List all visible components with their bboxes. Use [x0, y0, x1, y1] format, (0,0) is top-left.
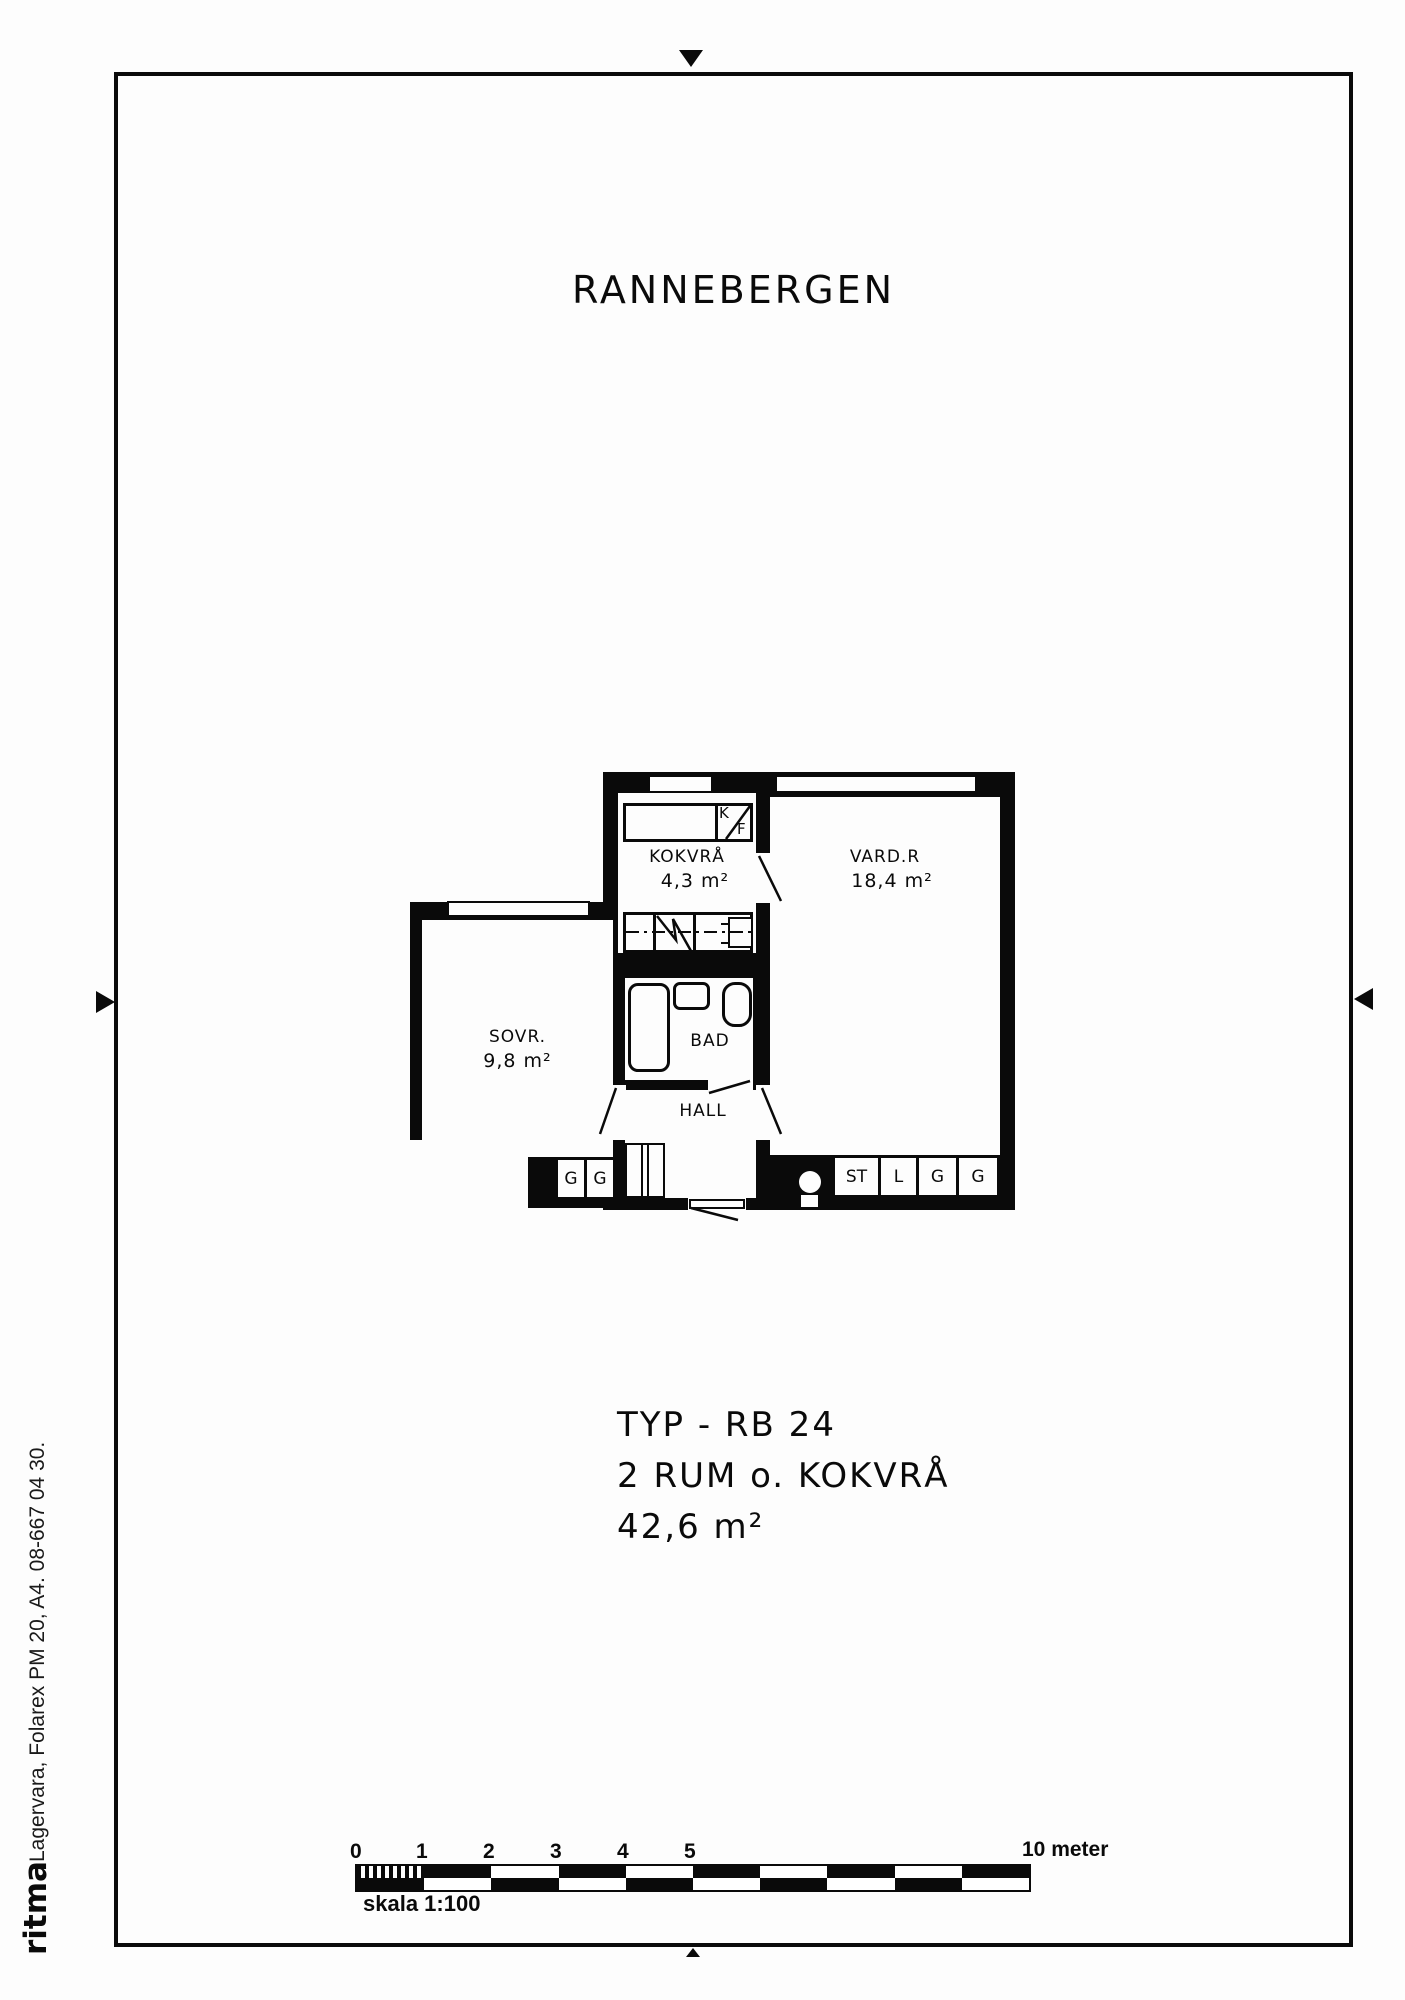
label-vardagsrum: VARD.R 18,4 m²	[770, 846, 1000, 895]
scale-bar-top-row	[357, 1866, 1029, 1878]
scale-seg	[962, 1866, 1029, 1878]
shaft-column	[799, 1171, 821, 1193]
vardagsrum-area: 18,4 m²	[784, 869, 1000, 895]
label-hall: HALL	[640, 1100, 766, 1123]
registration-mark-bottom-icon	[686, 1948, 700, 1957]
closet-right-label-g2: G	[959, 1167, 997, 1187]
scale-seg	[424, 1878, 491, 1890]
window-kokvra	[648, 775, 713, 793]
scale-seg	[559, 1878, 626, 1890]
scale-seg	[491, 1866, 558, 1878]
type-line-2: 2 RUM o. KOKVRÅ	[617, 1451, 950, 1502]
washbasin	[673, 982, 710, 1010]
type-block: TYP - RB 24 2 RUM o. KOKVRÅ 42,6 m²	[617, 1400, 950, 1553]
vardagsrum-name: VARD.R	[770, 846, 1000, 869]
closet-left-label-2: G	[587, 1169, 613, 1189]
scale-seg	[559, 1866, 626, 1878]
scale-seg	[491, 1878, 558, 1890]
label-bad: BAD	[660, 1030, 760, 1053]
type-line-1: TYP - RB 24	[617, 1400, 950, 1451]
scale-seg	[626, 1878, 693, 1890]
closet-right-label-st: ST	[835, 1167, 878, 1187]
fixture-divider-2	[693, 912, 696, 953]
scale-tick-0: 0	[350, 1840, 362, 1864]
type-line-3: 42,6 m²	[617, 1502, 950, 1553]
scale-seg	[827, 1866, 894, 1878]
shaft-column-base	[801, 1195, 818, 1207]
kokvra-name: KOKVRÅ	[618, 846, 756, 869]
kitchen-counter	[623, 803, 753, 842]
floor-plan: K F G G ST L G G KOKVRÅ 4,3 m² VARD.R 18…	[410, 770, 1016, 1250]
sovrum-name: SOVR.	[422, 1026, 613, 1049]
window-vardagsrum	[775, 775, 977, 793]
closet-left-label-1: G	[558, 1169, 584, 1189]
scale-tick-5: 5	[684, 1840, 696, 1864]
scale-caption: skala 1:100	[363, 1891, 480, 1917]
scale-bar	[355, 1864, 1031, 1892]
hall-cabinet	[625, 1143, 665, 1198]
scale-seg	[357, 1878, 424, 1890]
scale-seg	[693, 1866, 760, 1878]
scale-tick-2: 2	[483, 1840, 495, 1864]
counter-divider	[715, 803, 718, 842]
door-opening-hall-sovrum	[612, 1085, 626, 1140]
label-sovrum: SOVR. 9,8 m²	[422, 1026, 613, 1075]
page-title: RANNEBERGEN	[114, 268, 1353, 312]
scale-seg	[895, 1878, 962, 1890]
window-sovrum	[447, 901, 590, 917]
fixture-divider-1	[653, 912, 656, 953]
ritma-logo: ritma	[18, 1855, 54, 1955]
scale-tick-1: 1	[416, 1840, 428, 1864]
hall-cabinet-door-line-2	[647, 1143, 649, 1198]
door-opening-bad-hall	[708, 1078, 753, 1092]
registration-mark-right-icon	[1354, 988, 1373, 1010]
closet-right-label-l: L	[881, 1167, 916, 1187]
scale-right-label: 10 meter	[1022, 1838, 1108, 1862]
toilet	[722, 982, 752, 1027]
margin-vertical-text: Lagervara, Folarex PM 20, A4. 08-667 04 …	[26, 1387, 50, 1862]
fridge-label-k: K	[719, 804, 729, 822]
freezer-label-f: F	[737, 820, 746, 838]
scale-seg	[827, 1878, 894, 1890]
scale-seg	[693, 1878, 760, 1890]
registration-mark-left-icon	[96, 991, 115, 1013]
scale-seg	[357, 1866, 424, 1878]
entrance-door-leaf	[689, 1199, 745, 1209]
scale-tick-3: 3	[550, 1840, 562, 1864]
scale-seg	[962, 1878, 1029, 1890]
scale-seg	[895, 1866, 962, 1878]
kitchen-sink	[728, 917, 753, 948]
registration-mark-top-icon	[679, 50, 703, 67]
scale-tick-4: 4	[617, 1840, 629, 1864]
hall-cabinet-door-line-1	[641, 1143, 643, 1198]
sovrum-area: 9,8 m²	[422, 1049, 613, 1075]
bathtub	[628, 983, 670, 1072]
scale-seg	[760, 1878, 827, 1890]
scale-seg	[760, 1866, 827, 1878]
label-kokvra: KOKVRÅ 4,3 m²	[618, 846, 756, 895]
scale-bar-bottom-row	[357, 1878, 1029, 1890]
closet-right-label-g1: G	[919, 1167, 956, 1187]
kokvra-area: 4,3 m²	[634, 869, 756, 895]
scale-seg	[424, 1866, 491, 1878]
scale-seg	[626, 1866, 693, 1878]
